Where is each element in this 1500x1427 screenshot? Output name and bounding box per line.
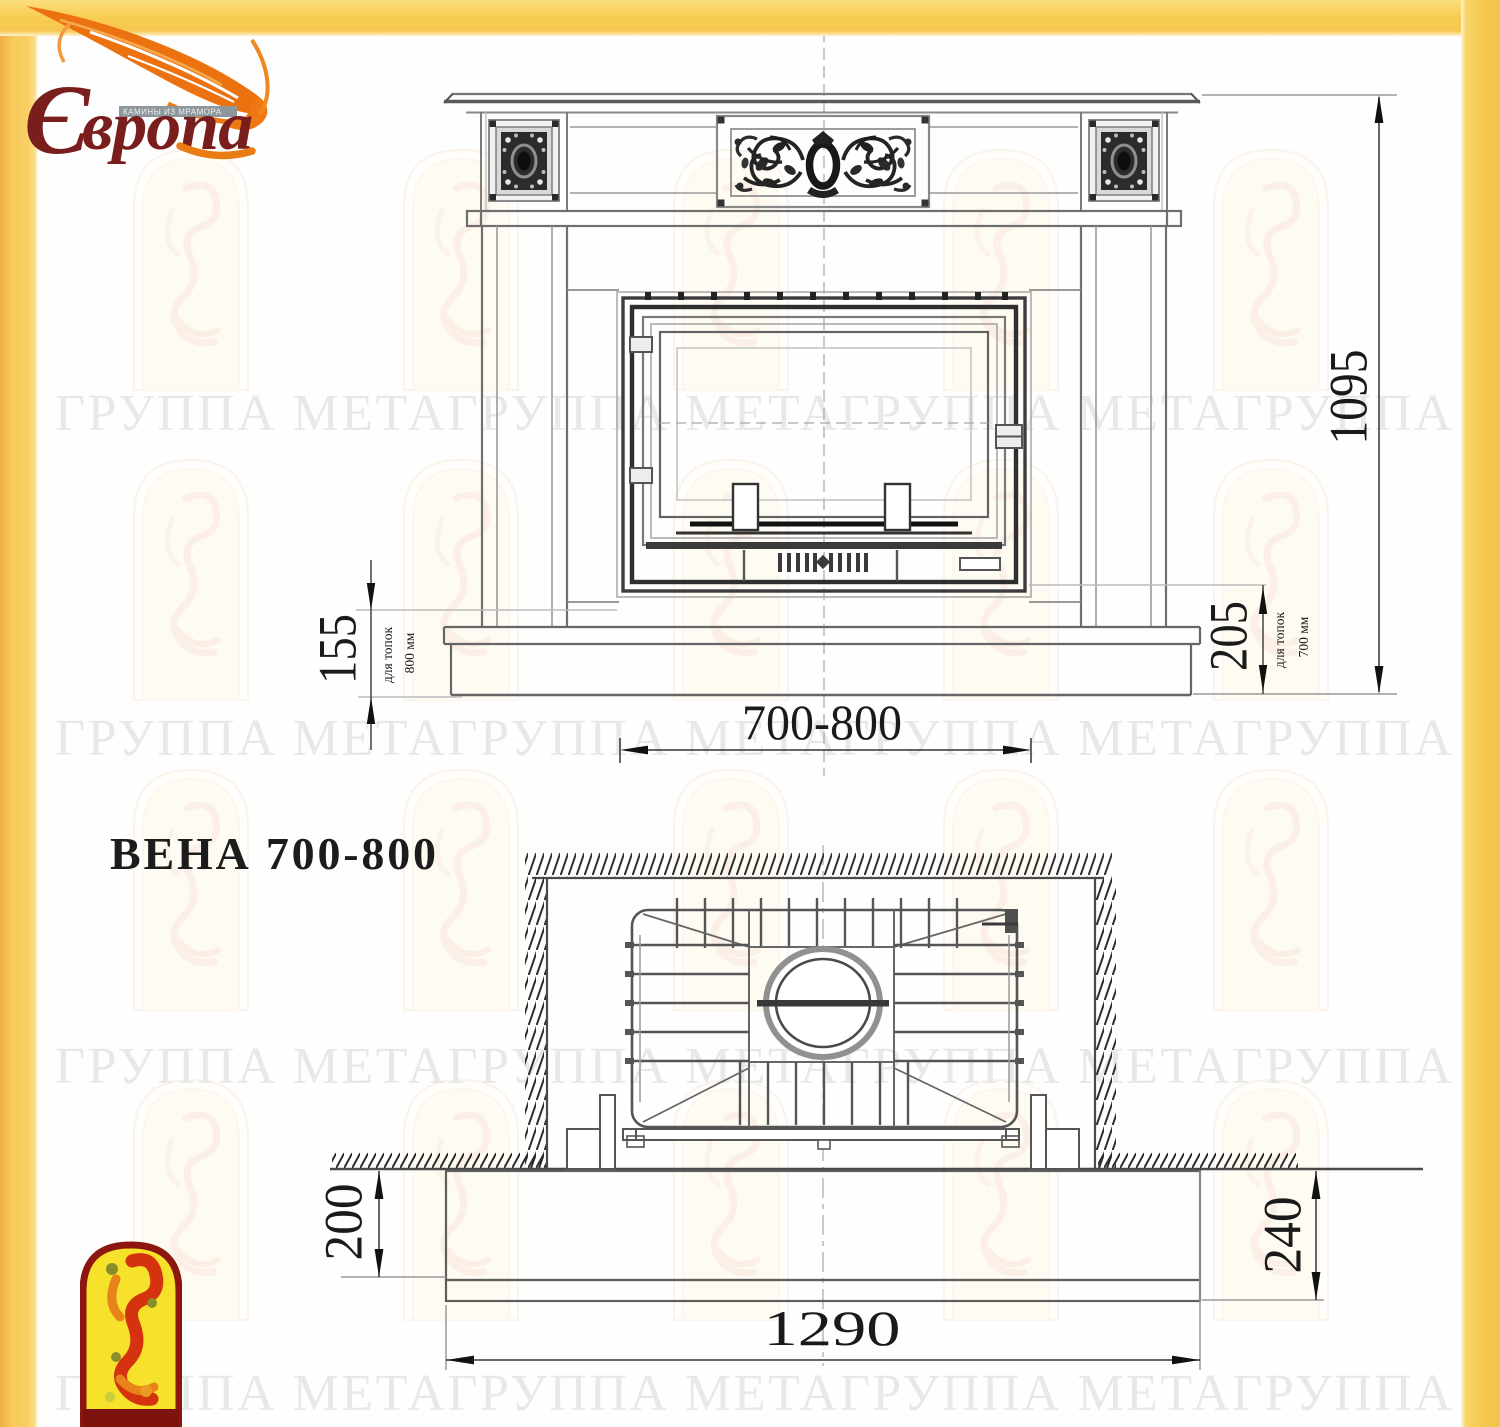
svg-text:700-800: 700-800 [742, 694, 902, 750]
svg-text:200: 200 [313, 1184, 373, 1261]
svg-text:для топок: для топок [1272, 611, 1287, 668]
svg-text:1290: 1290 [764, 1300, 901, 1356]
svg-text:ВЕНА 700-800: ВЕНА 700-800 [110, 828, 436, 879]
svg-text:800 мм: 800 мм [402, 632, 417, 673]
svg-text:1095: 1095 [1318, 350, 1378, 445]
svg-text:700 мм: 700 мм [1296, 616, 1311, 657]
svg-text:Є: Є [24, 64, 91, 175]
svg-text:240: 240 [1252, 1197, 1312, 1274]
svg-text:205: 205 [1198, 601, 1258, 671]
svg-text:155: 155 [307, 614, 367, 684]
svg-text:для топок: для топок [380, 626, 395, 683]
